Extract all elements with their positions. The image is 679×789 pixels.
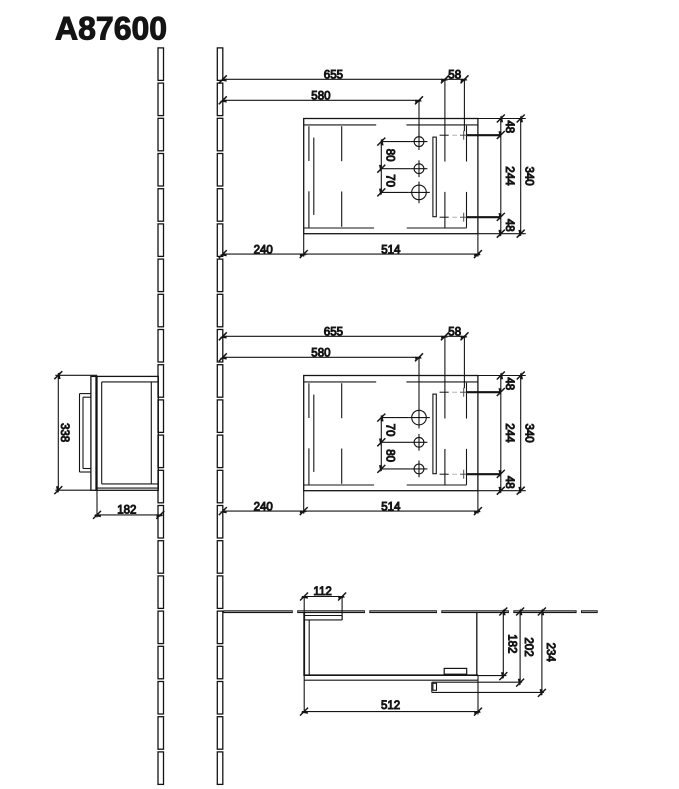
svg-text:234: 234 bbox=[544, 643, 556, 663]
svg-text:70: 70 bbox=[383, 424, 395, 437]
svg-text:240: 240 bbox=[254, 244, 273, 256]
svg-text:80: 80 bbox=[383, 149, 395, 162]
svg-text:202: 202 bbox=[522, 637, 534, 656]
svg-text:112: 112 bbox=[313, 586, 331, 598]
svg-text:340: 340 bbox=[523, 424, 535, 443]
svg-text:340: 340 bbox=[523, 167, 535, 186]
svg-text:48: 48 bbox=[503, 219, 515, 232]
svg-text:512: 512 bbox=[381, 700, 400, 712]
svg-text:70: 70 bbox=[383, 174, 395, 187]
svg-text:580: 580 bbox=[311, 91, 330, 103]
svg-text:514: 514 bbox=[381, 501, 401, 513]
svg-text:244: 244 bbox=[503, 423, 515, 443]
svg-text:338: 338 bbox=[58, 423, 70, 442]
svg-text:514: 514 bbox=[381, 244, 401, 256]
svg-text:580: 580 bbox=[311, 348, 330, 360]
svg-text:655: 655 bbox=[324, 327, 343, 339]
svg-text:A87600: A87600 bbox=[55, 11, 167, 47]
svg-text:240: 240 bbox=[254, 501, 273, 513]
svg-text:48: 48 bbox=[503, 120, 515, 133]
svg-text:58: 58 bbox=[448, 327, 461, 339]
svg-text:182: 182 bbox=[117, 505, 136, 517]
svg-text:48: 48 bbox=[503, 476, 515, 489]
svg-text:182: 182 bbox=[505, 634, 517, 653]
svg-text:244: 244 bbox=[503, 166, 515, 186]
svg-text:655: 655 bbox=[324, 70, 343, 82]
svg-text:58: 58 bbox=[448, 70, 461, 82]
svg-text:80: 80 bbox=[383, 449, 395, 462]
svg-text:48: 48 bbox=[503, 377, 515, 390]
